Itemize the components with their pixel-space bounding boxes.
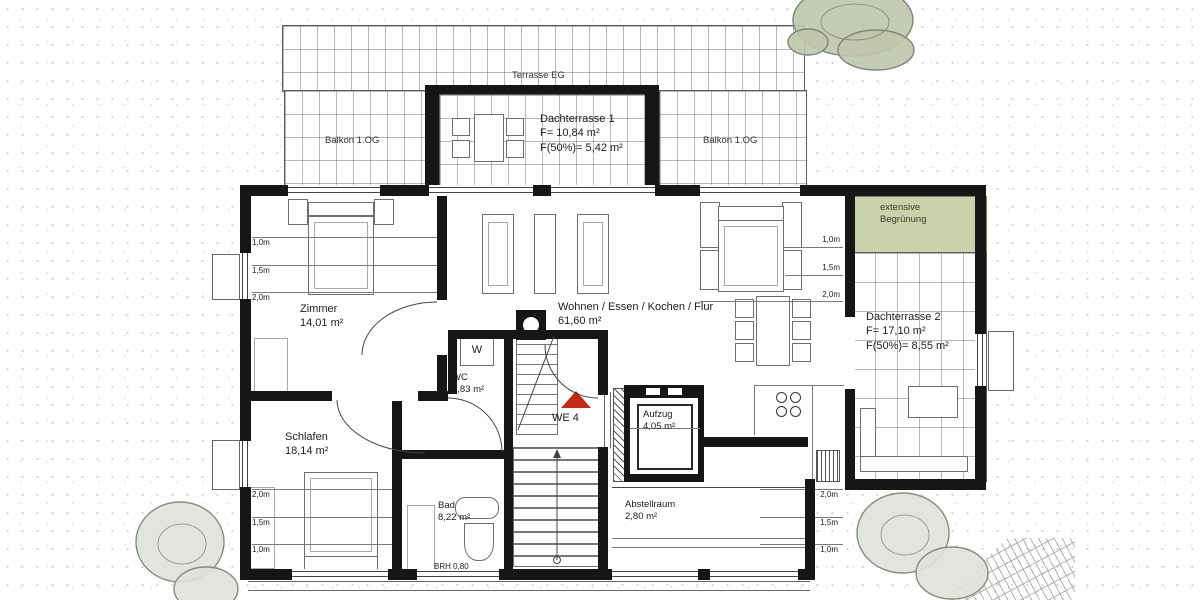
zimmer-area: 14,01 m² [300,316,343,330]
sofa-table [534,214,556,294]
dachterrasse-1-area50: F(50%)= 5,42 m² [540,141,623,155]
dachterrasse-2-area: F= 17,10 m² [866,324,949,338]
window [975,334,986,386]
cooktop-burner [790,406,801,417]
wall [645,85,659,185]
height-line [787,247,843,248]
green-roof-line2: Begrünung [880,214,926,226]
nightstand [288,199,308,225]
wall [425,85,439,185]
dining-chair [792,321,811,340]
door-opening [437,300,447,355]
height-mark: 2,0m [804,291,840,300]
terrace-sofa [860,456,968,472]
window [710,569,798,580]
kitchen-counter-edge [754,385,755,435]
height-mark: 1,0m [802,546,838,555]
height-line [785,275,843,276]
wall-kitchen [700,437,808,447]
dachterrasse-1-label: Dachterrasse 1 F= 10,84 m² F(50%)= 5,42 … [540,112,623,155]
cooktop-burner [790,392,801,403]
height-line [252,292,437,293]
bathtub [407,505,435,571]
dachterrasse-1-area: F= 10,84 m² [540,126,623,140]
window [700,185,800,196]
abstellraum-area: 2,80 m² [625,511,675,523]
cooktop-burner [776,406,787,417]
window [429,185,533,196]
height-mark: 1,0m [252,546,270,555]
height-mark: 2,0m [252,491,270,500]
window-sill-band [248,581,810,591]
unit-label: WE 4 [552,411,579,425]
ceiling-slope-line [612,547,806,548]
toilet [464,523,494,561]
green-roof-label: extensive Begrünung [880,202,926,227]
height-mark: 1,5m [252,267,270,276]
height-mark: 1,0m [252,239,270,248]
wohnen-area: 61,60 m² [558,314,713,328]
height-line [252,265,437,266]
aufzug-name: Aufzug [643,409,675,421]
height-line [252,237,437,238]
dachterrasse-2-area50: F(50%)= 8,55 m² [866,339,949,353]
zimmer-name: Zimmer [300,302,343,316]
dachterrasse-2-name: Dachterrasse 2 [866,310,949,324]
window [612,569,698,580]
window [240,441,251,487]
nightstand [374,199,394,225]
balkon-right-label: Balkon 1.OG [703,135,757,147]
height-mark: 2,0m [252,294,270,303]
bad-name: Bad [438,500,470,512]
kitchen-counter-edge [812,386,813,479]
wall-stair-shaft [598,330,608,395]
terrace-chair [452,140,470,158]
cooktop-burner [776,392,787,403]
terrace-chair [506,118,524,136]
window-sill [212,440,240,490]
sofa-inner [488,222,508,286]
height-line [700,301,843,302]
wc-area: 3,83 m² [452,384,484,396]
dachterrasse-1-name: Dachterrasse 1 [540,112,623,126]
aufzug-area: 4,05 m² [643,421,675,433]
bed-headboard [308,202,374,216]
wall-zimmer [437,196,447,396]
bed-inner [314,222,368,289]
dining-chair [792,343,811,362]
height-mark: 1,5m [252,519,270,528]
green-roof-line1: extensive [880,202,926,214]
room-label-schlafen: Schlafen 18,14 m² [285,430,328,459]
schlafen-name: Schlafen [285,430,328,444]
terrace-table [474,114,504,162]
washing-machine-label: W [472,344,482,356]
bed-inner [724,226,778,286]
cabinet [782,202,802,248]
terrasse-eg-label: Terrasse EG [512,70,565,82]
height-mark: 1,5m [802,519,838,528]
room-label-aufzug: Aufzug 4,05 m² [643,409,675,434]
terrace-chair [452,118,470,136]
room-label-zimmer: Zimmer 14,01 m² [300,302,343,331]
kitchen-sink [816,450,840,482]
abstellraum-name: Abstellraum [625,499,675,511]
wc-name: WC [452,372,484,384]
cabinet [782,250,802,290]
brh-annotation: BRH 0,80 [434,563,469,572]
kitchen-counter-edge [754,385,844,386]
dining-chair [735,343,754,362]
wall-wing-bottom [845,479,986,490]
wardrobe [254,338,288,394]
window-sill [212,254,240,300]
elevator-shaft-wall [624,398,630,482]
window [288,185,380,196]
window [292,569,388,580]
height-mark: 1,0m [804,236,840,245]
dining-table [756,296,790,366]
dachterrasse-2-label: Dachterrasse 2 F= 17,10 m² F(50%)= 8,55 … [866,310,949,353]
ceiling-slope-line [612,538,806,539]
bed-headboard [718,206,784,221]
wall-exterior-left [240,185,251,580]
cabinet [700,202,720,248]
stairs-lower-flight [513,447,604,567]
cabinet [700,250,720,290]
partition-line [612,487,806,488]
wohnen-name: Wohnen / Essen / Kochen / Flur [558,300,713,314]
elevator-door [604,392,611,448]
height-line [252,544,397,545]
schlafen-area: 18,14 m² [285,444,328,458]
room-label-wc: WC 3,83 m² [452,372,484,397]
height-mark: 2,0m [802,491,838,500]
unit-marker-triangle [561,391,591,408]
terrace-chair [506,140,524,158]
room-label-wohnen: Wohnen / Essen / Kochen / Flur 61,60 m² [558,300,713,329]
sofa-inner [583,222,603,286]
dining-chair [735,321,754,340]
window-sill [988,331,1014,391]
bed-headboard [304,556,378,570]
room-label-bad: Bad 8,22 m² [438,500,470,525]
elevator-door-slot-block [660,388,668,395]
elevator-shaft-wall [624,474,704,482]
height-mark: 1,5m [804,264,840,273]
height-line [252,489,397,490]
room-label-abstellraum: Abstellraum 2,80 m² [625,499,675,524]
window [551,185,655,196]
wall-stair-shaft [504,330,513,570]
wall-stair-shaft [504,330,608,339]
balkon-left-label: Balkon 1.OG [325,135,379,147]
terrace-lounge-table [908,386,958,418]
bad-area: 8,22 m² [438,512,470,524]
wall [425,85,659,94]
floor-plan: W [0,0,1200,600]
window [240,253,251,299]
wall [392,401,402,569]
height-line [252,517,397,518]
terrace-door-opening [845,317,855,389]
door-opening [332,391,418,401]
wall-bad [402,450,504,459]
wall-stair-shaft [598,447,608,570]
